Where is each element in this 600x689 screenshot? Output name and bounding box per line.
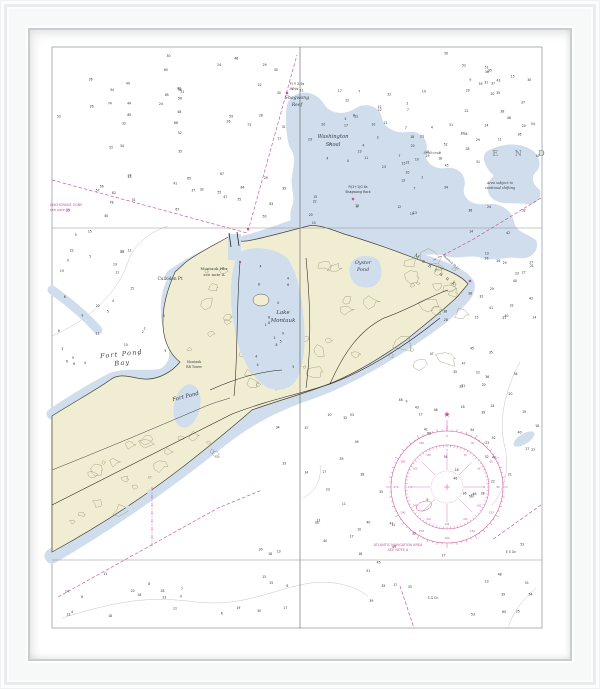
sounding: 17 [393, 583, 397, 587]
sounding: 4 [277, 301, 279, 305]
sounding: 18 [461, 405, 465, 409]
sounding: 47 [536, 154, 540, 158]
sounding: 9 [81, 314, 83, 318]
sounding: 31 [484, 80, 488, 84]
svg-text:240: 240 [400, 511, 405, 515]
sounding: 52 [462, 64, 466, 68]
sounding: 38 [443, 310, 447, 314]
sounding: 21 [384, 121, 388, 125]
sounding: 27 [529, 261, 533, 265]
sounding: 54 [514, 372, 518, 376]
sounding: 54 [110, 88, 114, 92]
sounding: 34 [276, 425, 280, 429]
sounding: 14 [304, 471, 308, 475]
sounding: 15 [88, 230, 92, 234]
sounding: 19 [426, 154, 430, 158]
sounding: 49 [126, 82, 130, 86]
sounding: 3 [377, 136, 379, 140]
sounding: 2 [274, 336, 276, 340]
sounding: 31 [461, 384, 465, 388]
sounding: 52 [109, 146, 113, 150]
sounding: 48 [234, 56, 238, 60]
sounding: 35 [66, 208, 70, 212]
sounding: 65 [187, 177, 191, 181]
sounding: 39 [369, 599, 373, 603]
sounding: 19 [422, 90, 426, 94]
sounding: 47 [462, 362, 466, 366]
sounding: 9 [439, 151, 441, 155]
sounding: 9 [180, 594, 182, 598]
sounding: 46 [473, 492, 477, 496]
sounding: 11 [300, 88, 304, 92]
sounding: 9 [406, 399, 408, 403]
sounding: 19 [113, 263, 117, 267]
sounding: 11 [364, 156, 368, 160]
sounding: 55 [237, 197, 241, 201]
sounding: 83 [269, 202, 273, 206]
sounding: 1 [265, 323, 267, 327]
sounding: 7 [358, 90, 360, 94]
sounding: 53 [520, 543, 524, 547]
sounding: 2 [421, 176, 423, 180]
sounding: 17 [322, 470, 326, 474]
chart-canvas: 5932473034402680834954267355335221665037… [0, 0, 600, 689]
sounding: 7 [413, 187, 415, 191]
sounding: 23 [485, 441, 489, 445]
svg-text:270: 270 [408, 486, 413, 489]
sounding: 15 [475, 316, 479, 320]
sounding: 30 [274, 68, 278, 72]
sounding: 40 [366, 520, 370, 524]
sounding: 20 [309, 213, 313, 217]
sounding: 14 [469, 230, 473, 234]
sounding: 85 [165, 93, 169, 97]
sounding: 26 [90, 104, 94, 108]
sounding: 34 [444, 186, 448, 190]
sounding: 22 [354, 115, 358, 119]
sounding: 22 [491, 480, 495, 484]
sounding: 19 [60, 269, 64, 273]
sounding: 52 [485, 455, 489, 459]
sounding: 4 [362, 144, 364, 148]
sounding: 8 [268, 321, 270, 325]
sounding: 8 [268, 315, 270, 319]
sounding: 43 [415, 406, 419, 410]
sounding: 15 [511, 75, 515, 79]
sounding: 13 [277, 550, 281, 554]
sounding: 6 [258, 283, 260, 287]
sounding: 14 [532, 316, 536, 320]
sounding: 55 [479, 82, 483, 86]
sounding: 13 [401, 179, 405, 183]
svg-text:60: 60 [490, 460, 494, 464]
sounding: 4 [326, 156, 328, 160]
sounding: 27 [522, 271, 526, 275]
sounding: 4 [431, 126, 433, 130]
sounding: 67 [220, 172, 224, 176]
sounding: 11 [115, 270, 119, 274]
sounding: 37 [191, 188, 195, 192]
sounding: 35 [379, 490, 383, 494]
sounding: 20 [96, 304, 100, 308]
svg-text:180: 180 [445, 536, 450, 540]
sounding: 19 [120, 250, 124, 254]
sounding: 46 [434, 408, 438, 412]
svg-text:120: 120 [477, 504, 482, 507]
sounding: 22 [345, 98, 349, 102]
sounding: 36 [463, 491, 467, 495]
sounding: 23 [515, 272, 519, 276]
sounding: 74 [108, 102, 112, 106]
sounding: 34 [120, 144, 124, 148]
sounding: 6 [287, 283, 289, 287]
sounding: 22 [355, 204, 359, 208]
sounding: 5 [280, 340, 282, 344]
sounding: 6 [286, 584, 288, 588]
sounding: 20 [509, 392, 513, 396]
sounding: 2 [406, 102, 408, 106]
sounding: 33 [200, 187, 204, 191]
sounding: 46 [453, 477, 457, 481]
sounding: 28 [444, 318, 448, 322]
sounding: 25 [516, 609, 520, 613]
sounding: 11 [173, 606, 177, 610]
sounding: 53 [350, 413, 354, 417]
sounding: 40 [513, 279, 517, 283]
sounding: 13 [262, 575, 266, 579]
sounding: 2 [144, 326, 146, 330]
sounding: 67 [175, 207, 179, 211]
sounding: 20 [522, 124, 526, 128]
sounding: 36 [485, 375, 489, 379]
sounding: 7 [407, 108, 409, 112]
small-pond [126, 506, 131, 511]
sounding: 20 [131, 589, 135, 593]
sounding: 39 [282, 186, 286, 190]
sounding: 24 [491, 404, 495, 408]
sounding: 9 [72, 356, 74, 360]
svg-text:180: 180 [445, 523, 450, 526]
sounding: 30 [277, 91, 281, 95]
sounding: 41 [424, 427, 428, 431]
buoy-dot [352, 198, 355, 201]
sounding: 29 [503, 261, 507, 265]
sounding: 40 [518, 430, 522, 434]
svg-text:60: 60 [477, 468, 480, 471]
sounding: 18 [358, 552, 362, 556]
sounding: 6 [64, 295, 66, 299]
sounding: 36 [518, 132, 522, 136]
sounding: 5 [164, 349, 166, 353]
sounding: 37 [491, 82, 495, 86]
sounding: 5 [75, 233, 77, 237]
star-island [253, 294, 269, 306]
sounding: 15 [312, 221, 316, 225]
sounding: 60 [502, 610, 506, 614]
sounding: 56 [100, 185, 104, 189]
sounding: 23 [326, 487, 330, 491]
sounding: 11 [391, 523, 395, 527]
svg-text:30: 30 [471, 441, 475, 445]
sounding: 9 [282, 332, 284, 336]
sounding: 45 [445, 163, 449, 167]
sounding: 20 [490, 92, 494, 96]
sounding: 18 [535, 424, 539, 428]
sounding: 30 [167, 54, 171, 58]
sounding: 31 [282, 125, 286, 129]
sounding: 18 [108, 614, 112, 618]
svg-text:30: 30 [464, 454, 467, 457]
sounding: 7 [399, 154, 401, 158]
svg-text:90: 90 [482, 486, 485, 489]
sounding: 23 [358, 150, 362, 154]
sounding: 47 [305, 426, 309, 430]
sounding: 22 [387, 92, 391, 96]
sounding: 9 [138, 352, 140, 356]
sounding: 6 [58, 329, 60, 333]
sounding: 29 [476, 138, 480, 142]
sounding: 17 [442, 554, 446, 558]
sounding: 10 [328, 413, 332, 417]
svg-text:300: 300 [413, 468, 418, 471]
sounding: 32 [343, 416, 347, 420]
sounding: 37 [521, 101, 525, 105]
sounding: 47 [430, 352, 434, 356]
sounding: 23 [485, 580, 489, 584]
svg-text:330: 330 [426, 454, 431, 457]
sounding: 21 [508, 472, 512, 476]
sounding: 20 [482, 383, 486, 387]
sounding: 52 [178, 131, 182, 135]
sounding: 55 [217, 190, 221, 194]
sounding: 29 [263, 63, 267, 67]
sounding: 80 [127, 113, 131, 117]
sounding: 82 [112, 191, 116, 195]
sounding: 33 [282, 462, 286, 466]
sounding: 39 [501, 593, 505, 597]
sounding: 4 [255, 355, 257, 359]
sounding: 28 [466, 147, 470, 151]
sounding: 4 [329, 142, 331, 146]
sounding: 11 [95, 332, 99, 336]
sounding: 41 [489, 306, 493, 310]
sounding: 26 [89, 77, 93, 81]
sounding: 3 [61, 347, 63, 351]
svg-text:210: 210 [419, 529, 424, 533]
sounding: 50 [263, 215, 267, 219]
buoy-dot [286, 92, 289, 95]
sounding: 32 [479, 294, 483, 298]
sounding: 41 [173, 181, 177, 185]
sounding: 12 [378, 105, 382, 109]
sounding: 66 [174, 121, 178, 125]
sounding: 78 [110, 201, 114, 205]
sounding: 28 [161, 589, 165, 593]
sounding: 21 [406, 161, 410, 165]
sounding: 12 [397, 205, 401, 209]
sounding: 31 [502, 316, 506, 320]
sounding: 4 [347, 159, 349, 163]
sounding: 26 [227, 120, 231, 124]
sounding: 30 [460, 132, 464, 136]
sounding: 27 [525, 447, 529, 451]
sounding: 80 [177, 86, 181, 90]
sounding: 52 [57, 114, 61, 118]
sounding: 6 [66, 359, 68, 363]
sounding: 36 [468, 209, 472, 213]
sounding: 35 [488, 69, 492, 73]
sounding: 13 [316, 519, 320, 523]
sounding: 22 [313, 200, 317, 204]
svg-text:270: 270 [394, 485, 399, 489]
sounding: 26 [485, 257, 489, 261]
sounding: 38 [500, 110, 504, 114]
lighthouse-dot [469, 280, 472, 283]
sounding: 8 [276, 343, 278, 347]
sounding: 4 [257, 363, 259, 367]
sounding: 47 [223, 195, 227, 199]
sounding: 5 [107, 310, 109, 314]
sounding: 54 [531, 122, 535, 126]
sounding: 8 [148, 582, 150, 586]
sounding: 10 [124, 343, 128, 347]
sounding: 15 [313, 195, 317, 199]
sounding: 84 [241, 186, 245, 190]
sounding: 17 [283, 606, 287, 610]
sounding: 15 [130, 287, 134, 291]
sounding: 54 [464, 132, 468, 136]
sounding: 22 [258, 83, 262, 87]
sounding: 48 [507, 116, 511, 120]
sounding: 23 [382, 165, 386, 169]
sounding: 24 [485, 123, 489, 127]
svg-text:90: 90 [496, 485, 500, 489]
sounding: 73 [247, 123, 251, 127]
sounding: 23 [420, 134, 424, 138]
sounding: 39 [481, 411, 485, 415]
sounding: 28 [481, 491, 485, 495]
sounding: 26 [496, 259, 500, 263]
sounding: 17 [419, 413, 423, 417]
sounding: 4 [287, 276, 289, 280]
sounding: 11 [128, 249, 132, 253]
sounding: 27 [531, 448, 535, 452]
sounding: 23 [162, 596, 166, 600]
sounding: 8 [81, 595, 83, 599]
sounding: 33 [408, 585, 412, 589]
sounding: 45 [377, 560, 381, 564]
sounding: 35 [381, 584, 385, 588]
sounding: 22 [465, 109, 469, 113]
sounding: 38 [360, 473, 364, 477]
sounding: 50 [444, 51, 448, 55]
sounding: 54 [470, 428, 474, 432]
north-star-icon: ★ [443, 410, 450, 419]
sounding: 18 [455, 468, 459, 472]
sounding: 22 [70, 249, 74, 253]
sounding: 4 [112, 299, 114, 303]
framed-nautical-chart: { "labels": { "fort_pond_bay": "Fort Pon… [0, 0, 600, 689]
sounding: 25 [269, 581, 273, 585]
svg-text:210: 210 [426, 518, 431, 521]
sounding: 49 [355, 440, 359, 444]
sounding: 5 [292, 365, 294, 369]
sounding: 23 [128, 175, 132, 179]
sounding: 7 [405, 126, 407, 130]
sounding: 4 [84, 361, 86, 365]
sounding: 29 [466, 88, 470, 92]
sounding: 32 [522, 209, 526, 213]
sounding: 12 [67, 613, 71, 617]
sounding: 56 [178, 97, 182, 101]
sounding: 32 [510, 304, 514, 308]
sounding: 39 [340, 457, 344, 461]
svg-text:240: 240 [413, 504, 418, 507]
oyster-pond [350, 256, 382, 288]
sounding: 53 [471, 613, 475, 617]
sounding: 18 [268, 552, 272, 556]
sounding: 52 [492, 436, 496, 440]
sounding: 9 [469, 78, 471, 82]
sounding: 52 [444, 143, 448, 147]
sounding: 31 [476, 160, 480, 164]
sounding: 30 [257, 609, 261, 613]
sounding: 13 [413, 211, 417, 215]
sounding: 42 [506, 231, 510, 235]
sounding: 7 [181, 587, 183, 591]
sounding: 3 [344, 117, 346, 121]
sounding: 18 [438, 156, 442, 160]
sounding: 44 [127, 101, 131, 105]
svg-text:300: 300 [400, 460, 405, 464]
sounding: 18 [137, 593, 141, 597]
sounding: 48 [498, 572, 502, 576]
sounding: 48 [177, 110, 181, 114]
sounding: 40 [323, 539, 327, 543]
sounding: 29 [490, 287, 494, 291]
sounding: 19 [236, 606, 240, 610]
sounding: 35 [453, 370, 457, 374]
sounding: 59 [229, 115, 233, 119]
sounding: 20 [406, 171, 410, 175]
sounding: 17 [350, 535, 354, 539]
sounding: 48 [399, 398, 403, 402]
sounding: 28 [259, 113, 263, 117]
sounding: 24 [217, 63, 221, 67]
sounding: 2 [142, 330, 144, 334]
sounding: 31 [366, 569, 370, 573]
svg-text:330: 330 [419, 441, 424, 445]
buoy-dot [247, 228, 249, 230]
sounding: 9 [67, 258, 69, 262]
sounding: 19 [522, 410, 526, 414]
sounding: 10 [371, 123, 375, 127]
sounding: 40 [104, 214, 108, 218]
sounding: 24 [487, 205, 491, 209]
sounding: 20 [411, 144, 415, 148]
sounding: 54 [529, 593, 533, 597]
buoy-dot [239, 261, 241, 263]
sounding: 60 [164, 68, 168, 72]
sounding: 35 [178, 149, 182, 153]
sounding: 35 [489, 351, 493, 355]
sounding: 17 [344, 124, 348, 128]
sounding: 10 [415, 158, 419, 162]
sounding: 38 [468, 291, 472, 295]
sounding: 43 [497, 79, 501, 83]
sounding: 10 [357, 528, 361, 532]
sounding: 49 [392, 545, 396, 549]
